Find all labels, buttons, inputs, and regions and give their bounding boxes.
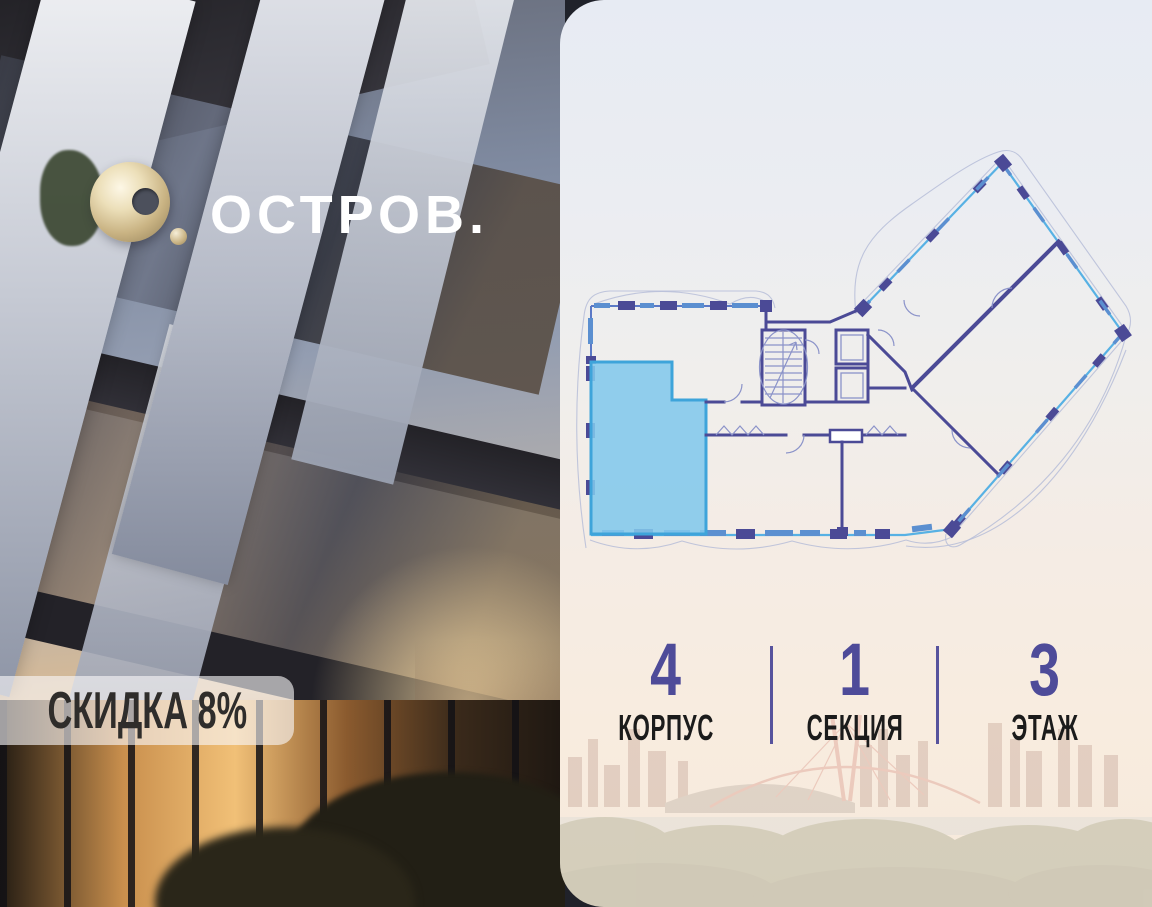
building-label: КОРПУС xyxy=(618,710,714,746)
section-label: СЕКЦИЯ xyxy=(807,710,904,746)
selected-unit[interactable] xyxy=(591,362,706,534)
stat-floor: 3 ЭТАЖ xyxy=(938,632,1152,754)
floorplan-svg xyxy=(560,0,1152,600)
section-number: 1 xyxy=(840,632,871,708)
ad-banner: ОСТРОВ. СКИДКА 8% xyxy=(0,0,1152,907)
floorplan-card: 4 КОРПУС 1 СЕКЦИЯ 3 ЭТАЖ xyxy=(560,0,1152,907)
stat-section: 1 СЕКЦИЯ xyxy=(772,632,938,754)
stats-row: 4 КОРПУС 1 СЕКЦИЯ 3 ЭТАЖ xyxy=(560,632,1152,762)
building-number: 4 xyxy=(651,632,682,708)
logo-dot-icon xyxy=(170,228,187,245)
building-photo: ОСТРОВ. СКИДКА 8% xyxy=(0,0,565,907)
floor-label: ЭТАЖ xyxy=(1012,710,1079,746)
discount-badge: СКИДКА 8% xyxy=(0,676,294,745)
floor-number: 3 xyxy=(1030,632,1061,708)
stat-building: 4 КОРПУС xyxy=(560,632,772,754)
logo-wordmark: ОСТРОВ. xyxy=(210,184,489,246)
logo-ring-icon xyxy=(90,162,170,242)
discount-badge-label: СКИДКА 8% xyxy=(47,681,247,741)
brand-logo: ОСТРОВ. xyxy=(88,158,508,278)
